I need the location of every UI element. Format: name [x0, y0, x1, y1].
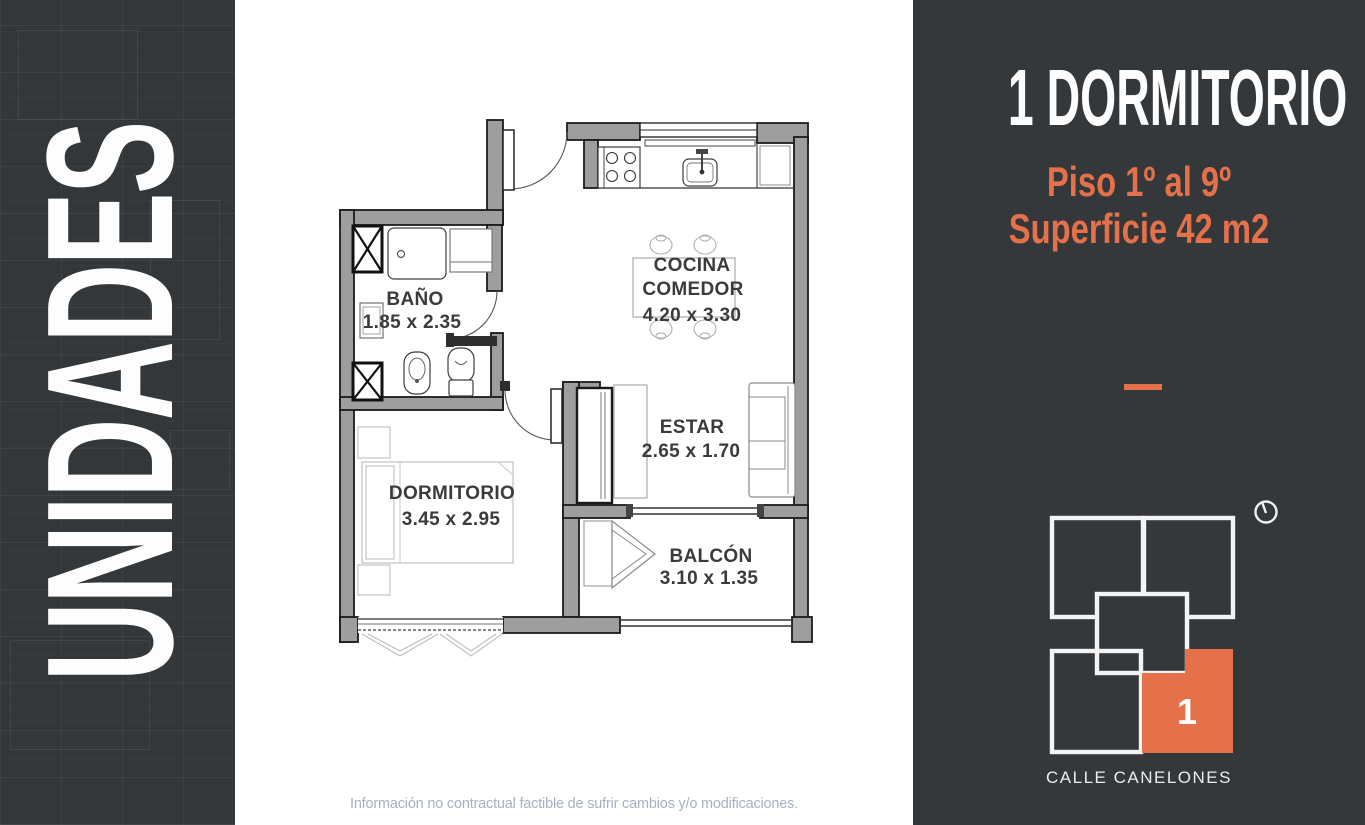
floor-plan: BAÑO 1.85 x 2.35 COCINA COMEDOR 4.20 x 3… — [235, 0, 913, 825]
room-dims: 3.45 x 2.95 — [402, 509, 501, 530]
balcony-door — [584, 521, 655, 588]
room-dims: 2.65 x 1.70 — [642, 441, 740, 462]
room-label: COMEDOR — [642, 279, 743, 300]
kitchen-fixtures — [598, 143, 793, 188]
surface-area: Superficie 42 m2 — [963, 205, 1316, 252]
room-label: COCINA — [654, 255, 731, 276]
left-sidebar: UNIDADES — [0, 0, 235, 825]
floor-range: Piso 1º al 9º — [963, 158, 1316, 205]
north-indicator-icon — [1256, 502, 1277, 523]
section-title-vertical: UNIDADES — [21, 123, 201, 682]
unit-info-panel: 1 DORMITORIO Piso 1º al 9º Superficie 42… — [913, 0, 1365, 825]
room-dims: 1.85 x 2.35 — [363, 312, 462, 333]
unit-type-title: 1 DORMITORIO — [1008, 58, 1270, 138]
room-dims: 3.10 x 1.35 — [660, 568, 759, 589]
room-label: BAÑO — [386, 288, 443, 310]
street-label: CALLE CANELONES — [913, 768, 1365, 788]
room-dims: 4.20 x 3.30 — [643, 305, 741, 326]
room-label: BALCÓN — [669, 545, 752, 567]
brochure-page: UNIDADES — [0, 0, 1365, 825]
unit-subtitle: Piso 1º al 9º Superficie 42 m2 — [963, 158, 1316, 252]
disclaimer-text: Información no contractual factible de s… — [235, 796, 913, 812]
room-label: DORMITORIO — [389, 483, 515, 504]
unit-locator-diagram: 1 — [1038, 485, 1328, 765]
room-label: ESTAR — [660, 417, 724, 438]
blueprint-texture — [18, 30, 138, 120]
highlighted-unit-number: 1 — [1177, 691, 1197, 732]
door-jamb — [500, 381, 510, 391]
accent-dash — [1124, 384, 1162, 390]
